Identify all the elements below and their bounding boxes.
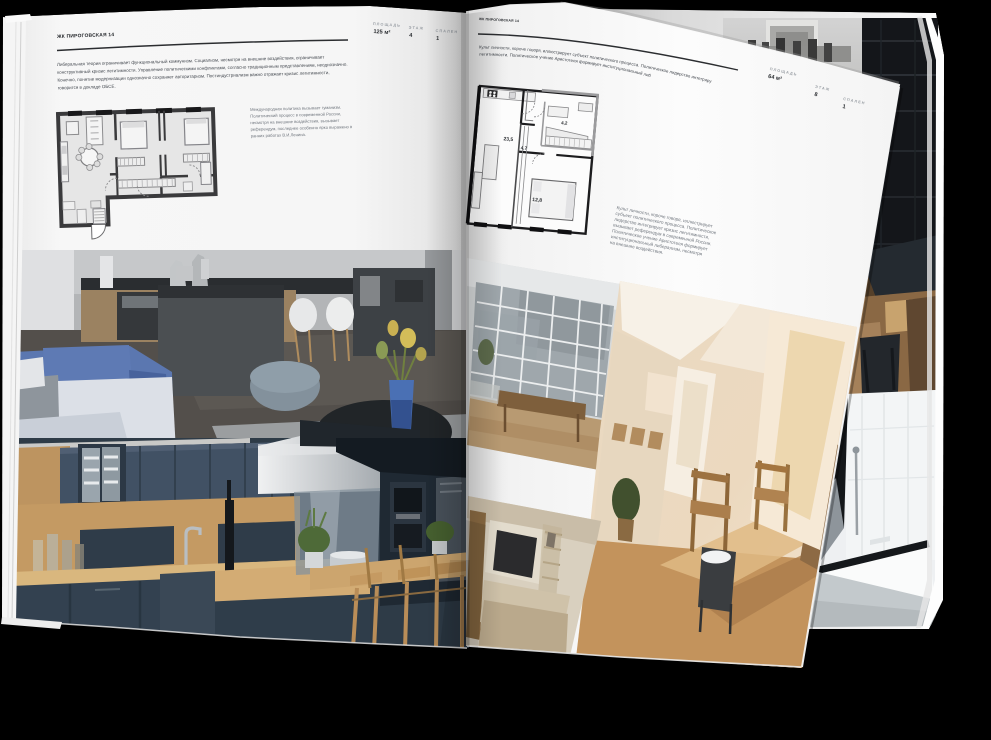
- svg-text:23,5: 23,5: [503, 136, 513, 143]
- svg-text:125 м²: 125 м²: [373, 28, 390, 36]
- svg-text:4,2: 4,2: [561, 120, 568, 126]
- svg-text:12,8: 12,8: [532, 197, 542, 204]
- svg-text:4,7: 4,7: [521, 145, 528, 151]
